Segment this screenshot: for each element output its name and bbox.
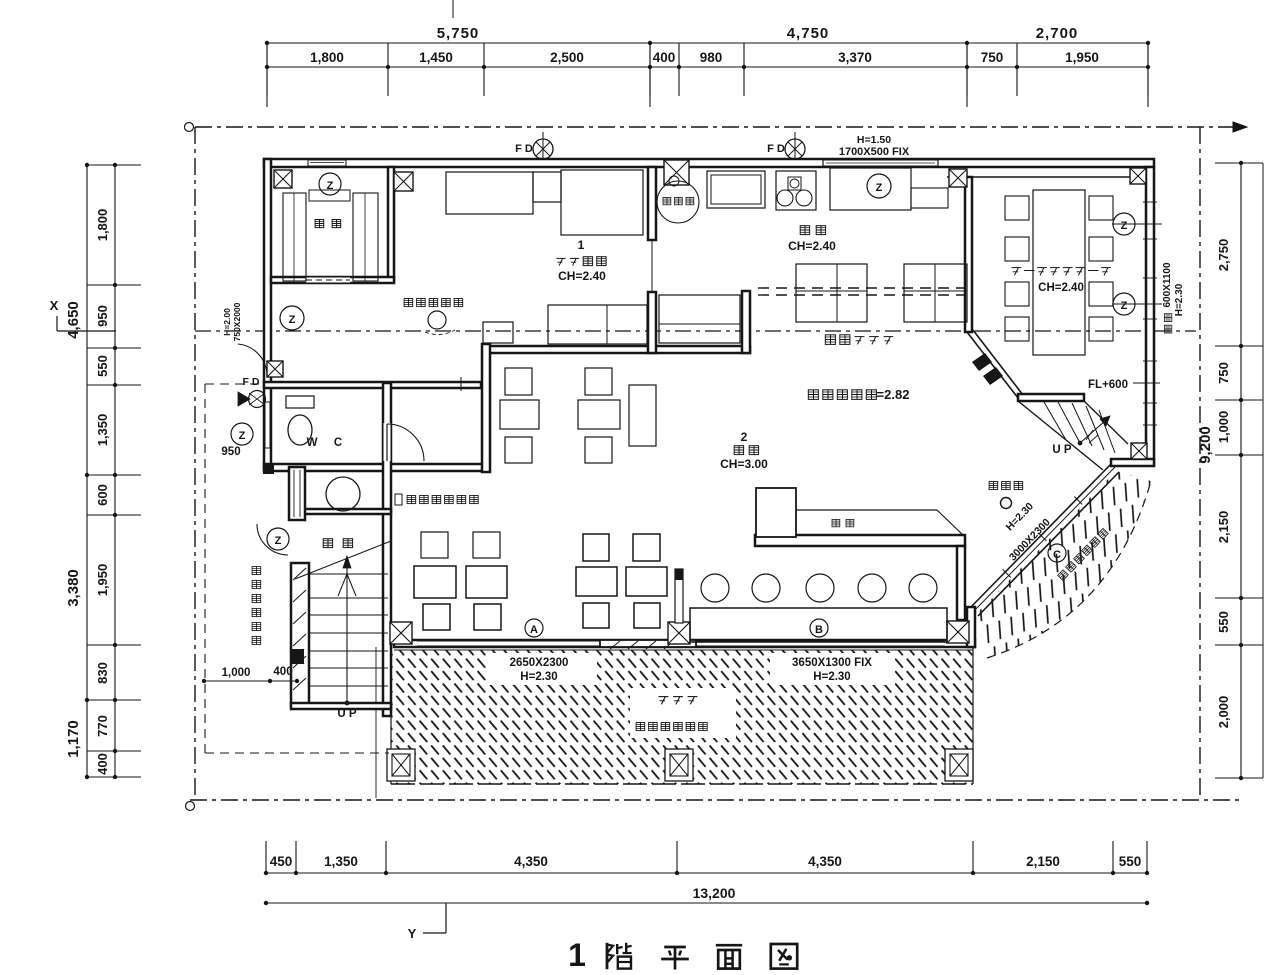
svg-text:750: 750 [981, 50, 1004, 65]
svg-text:F D: F D [243, 376, 260, 388]
svg-text:4,750: 4,750 [787, 25, 830, 42]
svg-text:C: C [1053, 549, 1061, 561]
svg-text:C: C [334, 437, 342, 449]
svg-text:CH=2.40: CH=2.40 [788, 239, 836, 253]
svg-text:400: 400 [273, 666, 292, 678]
svg-text:Z: Z [289, 314, 296, 326]
svg-text:600: 600 [95, 484, 110, 506]
svg-text:750: 750 [1216, 362, 1231, 384]
svg-text:550: 550 [1216, 611, 1231, 633]
svg-text:600X1100: 600X1100 [1162, 262, 1173, 307]
svg-text:830: 830 [95, 662, 110, 684]
svg-text:1,450: 1,450 [419, 50, 453, 65]
svg-text:CH=2.40: CH=2.40 [1038, 282, 1084, 294]
svg-text:1,000: 1,000 [222, 667, 251, 679]
svg-text:5,750: 5,750 [437, 25, 480, 42]
svg-text:4,350: 4,350 [808, 854, 842, 869]
svg-text:H=2.30: H=2.30 [1174, 283, 1185, 316]
svg-text:950: 950 [221, 446, 240, 458]
svg-text:13,200: 13,200 [693, 885, 736, 901]
svg-text:2,700: 2,700 [1036, 25, 1079, 42]
svg-text:1,800: 1,800 [310, 50, 344, 65]
svg-text:B: B [815, 624, 823, 636]
svg-text:550: 550 [1119, 854, 1142, 869]
svg-text:750X2000: 750X2000 [232, 302, 242, 341]
svg-text:2,150: 2,150 [1026, 854, 1060, 869]
svg-text:4,350: 4,350 [514, 854, 548, 869]
svg-text:1700X500 FIX: 1700X500 FIX [839, 146, 910, 158]
svg-text:1,800: 1,800 [95, 209, 110, 242]
svg-text:FL+600: FL+600 [1088, 379, 1128, 391]
svg-text:4,650: 4,650 [65, 301, 82, 339]
svg-text:770: 770 [95, 715, 110, 737]
svg-text:H=2.30: H=2.30 [813, 671, 850, 683]
svg-text:Z: Z [1121, 220, 1128, 232]
svg-text:1,170: 1,170 [65, 720, 82, 758]
svg-text:F D: F D [767, 143, 785, 155]
svg-text:2,500: 2,500 [550, 50, 584, 65]
svg-text:950: 950 [95, 305, 110, 327]
svg-text:3,380: 3,380 [65, 569, 82, 607]
svg-text:CH=2.40: CH=2.40 [558, 269, 606, 283]
svg-text:CH=3.00: CH=3.00 [720, 457, 768, 471]
svg-text:H=2.00: H=2.00 [222, 308, 232, 336]
svg-text:1,950: 1,950 [95, 564, 110, 597]
svg-text:=2.82: =2.82 [877, 387, 910, 402]
svg-text:1,000: 1,000 [1216, 411, 1231, 444]
svg-text:Z: Z [1121, 300, 1128, 312]
svg-text:2,750: 2,750 [1216, 239, 1231, 272]
svg-text:U P: U P [1052, 444, 1072, 456]
svg-text:H=2.30: H=2.30 [520, 671, 557, 683]
svg-text:450: 450 [270, 854, 293, 869]
svg-text:Z: Z [275, 535, 282, 547]
svg-text:Z: Z [327, 180, 334, 192]
svg-text:H=1.50: H=1.50 [857, 134, 891, 146]
svg-text:W: W [307, 437, 318, 449]
svg-text:1,350: 1,350 [95, 414, 110, 447]
svg-text:400: 400 [653, 50, 676, 65]
svg-text:2650X2300: 2650X2300 [510, 657, 569, 669]
svg-text:1: 1 [578, 238, 585, 252]
svg-text:U P: U P [337, 708, 357, 720]
svg-text:1,950: 1,950 [1065, 50, 1099, 65]
svg-text:2: 2 [741, 430, 748, 444]
svg-text:400: 400 [95, 753, 110, 775]
svg-text:Z: Z [876, 182, 883, 194]
svg-text:1: 1 [568, 937, 586, 973]
svg-text:2,000: 2,000 [1216, 696, 1231, 729]
svg-text:Y: Y [408, 926, 417, 941]
svg-text:3650X1300 FIX: 3650X1300 FIX [792, 657, 872, 669]
svg-text:F D: F D [515, 143, 533, 155]
svg-text:3,370: 3,370 [838, 50, 872, 65]
svg-text:X: X [50, 298, 59, 313]
svg-text:Z: Z [239, 430, 246, 442]
svg-text:1,350: 1,350 [324, 854, 358, 869]
svg-text:A: A [530, 624, 538, 636]
svg-text:550: 550 [95, 355, 110, 377]
svg-text:2,150: 2,150 [1216, 511, 1231, 544]
svg-text:980: 980 [700, 50, 723, 65]
